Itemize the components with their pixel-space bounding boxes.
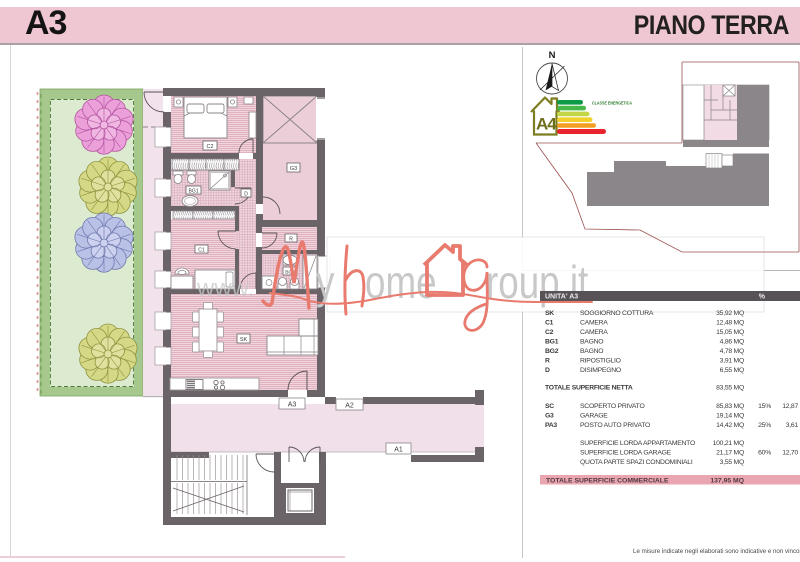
svg-text:C2: C2 (206, 144, 213, 150)
svg-text:RIPOSTIGLIO: RIPOSTIGLIO (580, 358, 621, 365)
svg-text:SOGGIORNO COTTURA: SOGGIORNO COTTURA (580, 310, 654, 317)
svg-text:85,83 MQ: 85,83 MQ (716, 403, 744, 410)
svg-text:R: R (289, 237, 293, 243)
svg-text:G3: G3 (545, 413, 554, 420)
svg-text:A4: A4 (536, 115, 557, 134)
svg-text:CAMERA: CAMERA (580, 320, 608, 327)
svg-text:19,14 MQ: 19,14 MQ (716, 413, 744, 420)
svg-text:BAGNO: BAGNO (580, 339, 603, 346)
svg-text:QUOTA PARTE SPAZI CONDOMINIALI: QUOTA PARTE SPAZI CONDOMINIALI (580, 459, 693, 466)
svg-text:3,55 MQ: 3,55 MQ (720, 459, 744, 466)
svg-text:D: D (244, 192, 248, 198)
svg-text:14,42 MQ: 14,42 MQ (716, 422, 744, 429)
svg-text:C2: C2 (545, 329, 554, 336)
svg-text:15,05 MQ: 15,05 MQ (716, 329, 744, 336)
svg-text:4,78 MQ: 4,78 MQ (720, 348, 744, 355)
svg-text:35,92 MQ: 35,92 MQ (716, 310, 744, 317)
svg-text:TOTALE SUPERFICIE NETTA: TOTALE SUPERFICIE NETTA (545, 385, 633, 392)
svg-text:G3: G3 (290, 166, 297, 172)
svg-text:137,95 MQ: 137,95 MQ (710, 478, 744, 485)
svg-text:y: y (316, 256, 335, 308)
svg-text:BG1: BG1 (545, 339, 559, 346)
svg-text:25%: 25% (758, 422, 771, 429)
svg-text:PIANO TERRA: PIANO TERRA (634, 10, 789, 40)
svg-text:3,61: 3,61 (786, 422, 799, 429)
svg-text:BG2: BG2 (545, 348, 559, 355)
svg-text:SCOPERTO PRIVATO: SCOPERTO PRIVATO (580, 403, 645, 410)
svg-text:A2: A2 (345, 403, 354, 410)
svg-text:SK: SK (240, 337, 248, 343)
svg-text:Le misure indicate negli elabo: Le misure indicate negli elaborati sono … (633, 548, 800, 555)
svg-text:BG1: BG1 (188, 189, 198, 195)
svg-text:12,87: 12,87 (782, 403, 798, 410)
svg-text:3,91 MQ: 3,91 MQ (720, 358, 744, 365)
svg-text:15%: 15% (758, 403, 771, 410)
svg-text:100,21 MQ: 100,21 MQ (713, 440, 744, 447)
svg-text:UNITA' A3: UNITA' A3 (545, 294, 578, 301)
svg-text:12,70: 12,70 (782, 450, 798, 457)
svg-text:BAGNO: BAGNO (580, 348, 603, 355)
svg-text:C1: C1 (545, 320, 554, 327)
svg-text:12,48 MQ: 12,48 MQ (716, 320, 744, 327)
svg-text:PA3: PA3 (545, 422, 557, 429)
svg-text:60%: 60% (758, 450, 771, 457)
svg-text:SUPERFICIE LORDA APPARTAMENTO: SUPERFICIE LORDA APPARTAMENTO (580, 440, 695, 447)
svg-text:POSTO AUTO PRIVATO: POSTO AUTO PRIVATO (580, 422, 650, 429)
svg-text:www.: www. (196, 275, 254, 302)
svg-text:SK: SK (545, 310, 554, 317)
svg-text:DISIMPEGNO: DISIMPEGNO (580, 367, 621, 374)
svg-text:21,17 MQ: 21,17 MQ (716, 450, 744, 457)
svg-text:%: % (759, 294, 766, 301)
svg-text:83,55 MQ: 83,55 MQ (716, 385, 744, 392)
svg-text:CAMERA: CAMERA (580, 329, 608, 336)
svg-text:N: N (549, 50, 556, 61)
svg-text:4,86 MQ: 4,86 MQ (720, 339, 744, 346)
svg-text:GARAGE: GARAGE (580, 413, 608, 420)
svg-text:A3: A3 (288, 402, 297, 409)
svg-text:A3: A3 (25, 4, 67, 42)
svg-text:C1: C1 (198, 248, 205, 254)
svg-text:SUPERFICIE LORDA GARAGE: SUPERFICIE LORDA GARAGE (580, 450, 672, 457)
svg-text:6,55 MQ: 6,55 MQ (720, 367, 744, 374)
svg-text:A1: A1 (394, 447, 403, 454)
svg-text:TOTALE SUPERFICIE COMMERCIALE: TOTALE SUPERFICIE COMMERCIALE (546, 478, 669, 485)
svg-text:SC: SC (545, 403, 554, 410)
svg-text:R: R (545, 358, 550, 365)
svg-text:D: D (545, 367, 550, 374)
svg-text:CLASSE ENERGETICA: CLASSE ENERGETICA (592, 100, 632, 105)
